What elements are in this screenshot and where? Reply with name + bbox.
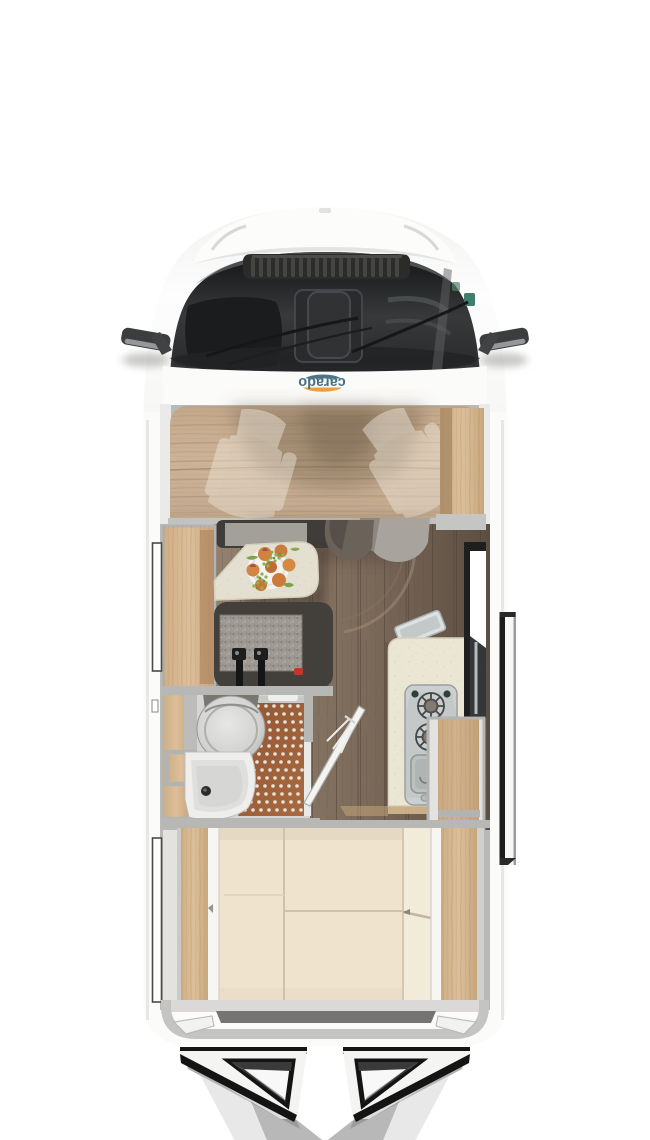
svg-text:carado: carado [298,374,346,390]
